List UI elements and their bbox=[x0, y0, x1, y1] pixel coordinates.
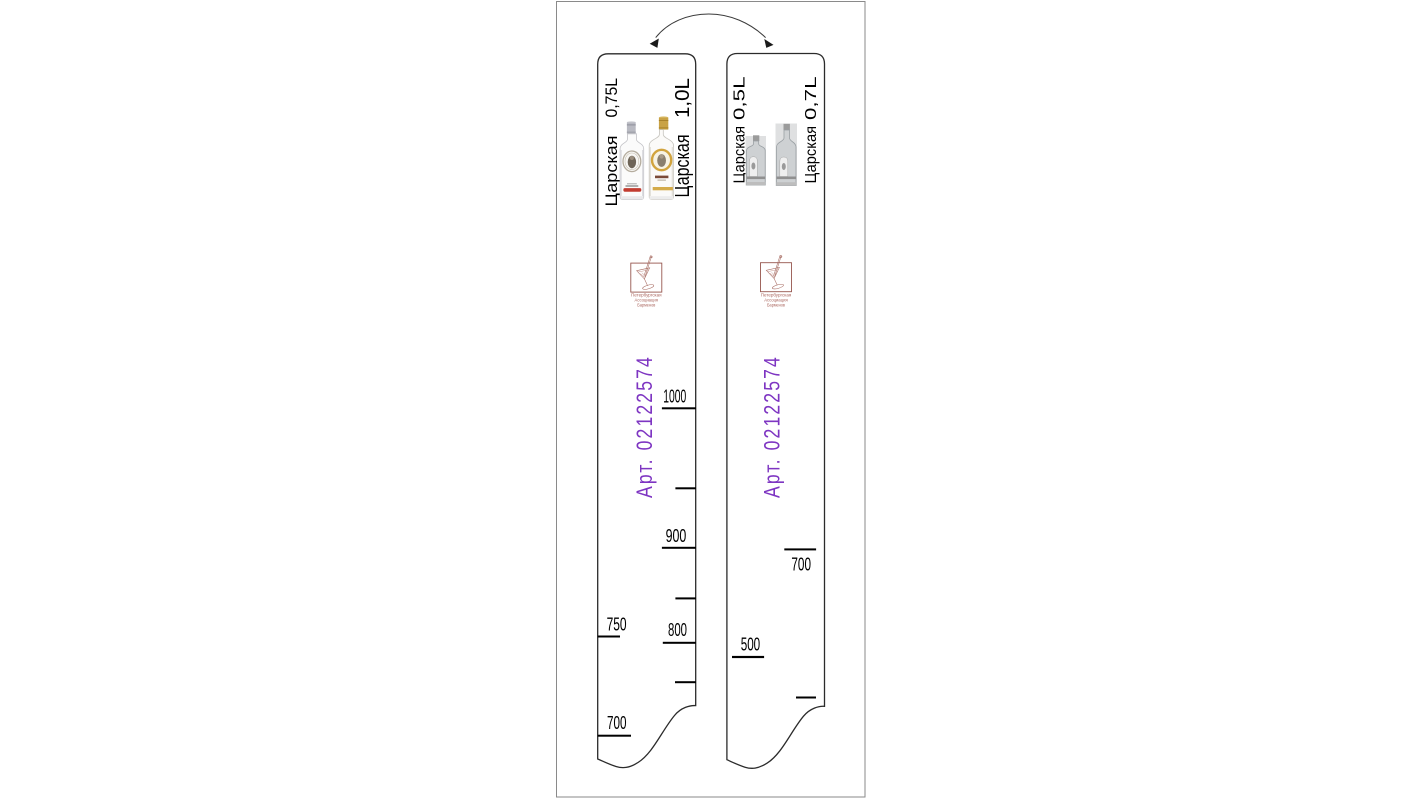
svg-text:700: 700 bbox=[791, 555, 811, 575]
svg-text:500: 500 bbox=[741, 634, 761, 654]
svg-text:Царская: Царская bbox=[602, 136, 621, 207]
svg-text:1,0L: 1,0L bbox=[672, 78, 694, 118]
svg-text:1000: 1000 bbox=[663, 386, 686, 406]
svg-text:900: 900 bbox=[666, 526, 687, 546]
svg-text:0,7L: 0,7L bbox=[803, 76, 820, 120]
svg-text:750: 750 bbox=[607, 614, 627, 634]
svg-text:0,5L: 0,5L bbox=[731, 76, 748, 120]
svg-text:0,75L: 0,75L bbox=[602, 78, 621, 118]
svg-text:Царская: Царская bbox=[803, 126, 820, 184]
svg-text:700: 700 bbox=[607, 713, 627, 733]
svg-text:800: 800 bbox=[668, 620, 687, 640]
svg-text:Царская: Царская bbox=[672, 135, 694, 198]
